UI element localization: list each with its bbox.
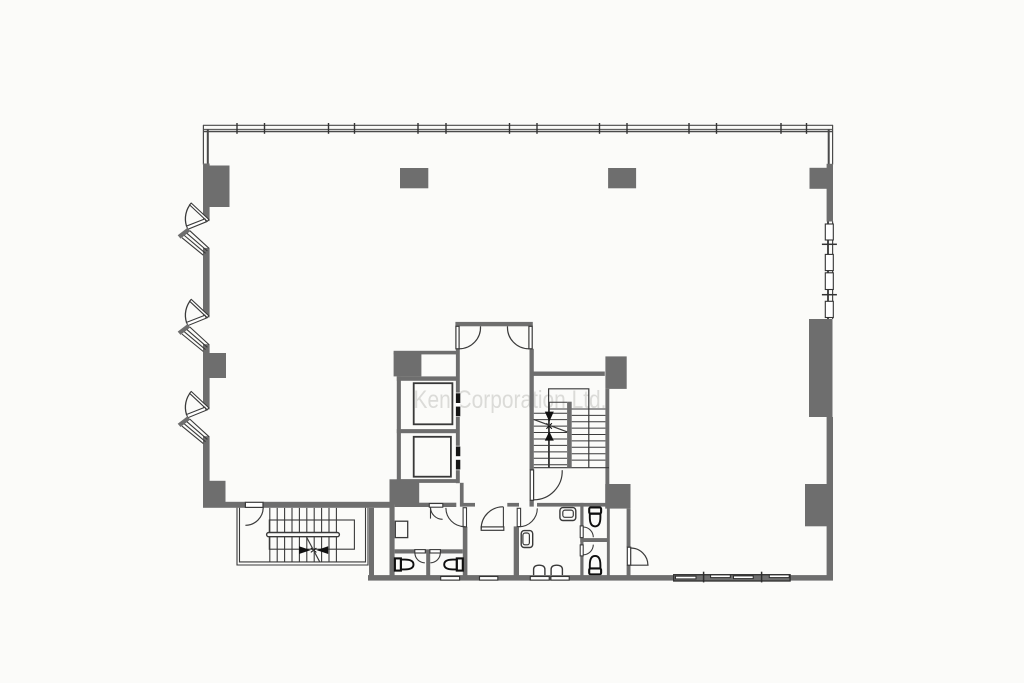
svg-text:Ken Corporation Ltd.: Ken Corporation Ltd. xyxy=(414,386,607,414)
